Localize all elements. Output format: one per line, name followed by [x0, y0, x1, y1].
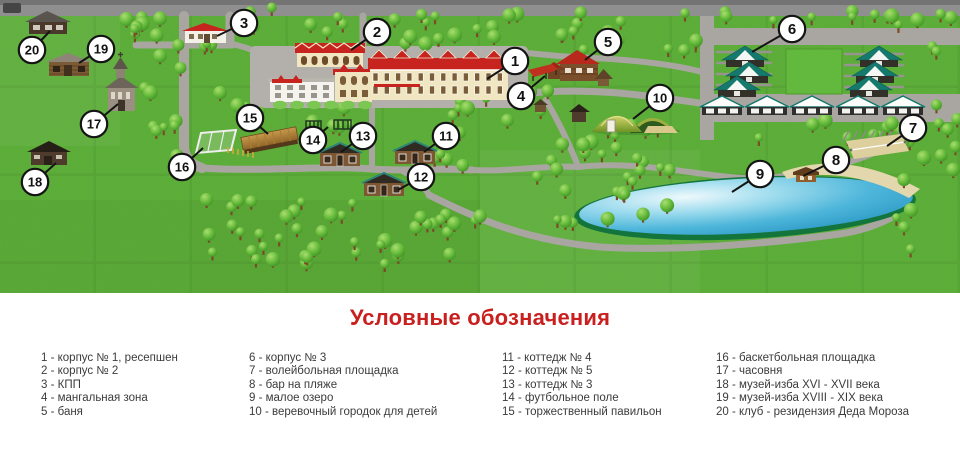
svg-text:18: 18 [28, 175, 42, 190]
svg-text:3: 3 [240, 15, 248, 32]
svg-text:8: 8 [832, 152, 840, 169]
svg-text:15: 15 [243, 111, 257, 126]
svg-text:14: 14 [306, 133, 321, 148]
svg-text:2: 2 [373, 24, 381, 41]
legend-item: 13 - коттедж № 3 [502, 379, 662, 392]
svg-text:12: 12 [414, 170, 428, 185]
resort-map-page: 1234567891011121314151617181920 Условные… [0, 0, 960, 453]
legend-column-1: 1 - корпус № 1, ресепшен2 - корпус № 23 … [41, 352, 178, 419]
svg-text:1: 1 [511, 53, 519, 70]
legend-item: 15 - торжественный павильон [502, 406, 662, 419]
legend-item: 6 - корпус № 3 [249, 352, 437, 365]
legend-item: 9 - малое озеро [249, 392, 437, 405]
legend-item: 10 - веревочный городок для детей [249, 406, 437, 419]
svg-text:16: 16 [175, 160, 189, 175]
svg-text:19: 19 [94, 42, 108, 57]
legend-item: 14 - футбольное поле [502, 392, 662, 405]
lawn-square [786, 49, 842, 94]
legend-column-4: 16 - баскетбольная площадка17 - часовня1… [716, 352, 909, 419]
legend-item: 16 - баскетбольная площадка [716, 352, 909, 365]
legend-item: 3 - КПП [41, 379, 178, 392]
legend-item: 20 - клуб - резидензия Деда Мороза [716, 406, 909, 419]
svg-text:13: 13 [356, 129, 370, 144]
legend-item: 18 - музей-изба XVI - XVII века [716, 379, 909, 392]
legend-item: 8 - бар на пляже [249, 379, 437, 392]
callout-14: 14 [300, 127, 328, 153]
svg-text:7: 7 [909, 120, 917, 137]
legend-item: 1 - корпус № 1, ресепшен [41, 352, 178, 365]
svg-text:11: 11 [439, 129, 453, 144]
legend-item: 19 - музей-изба XVIII - XIX века [716, 392, 909, 405]
legend-column-3: 11 - коттедж № 412 - коттедж № 513 - кот… [502, 352, 662, 419]
svg-text:6: 6 [788, 21, 796, 38]
legend-item: 12 - коттедж № 5 [502, 365, 662, 378]
svg-text:4: 4 [517, 88, 526, 105]
legend-column-2: 6 - корпус № 37 - волейбольная площадка8… [249, 352, 437, 419]
legend-item: 2 - корпус № 2 [41, 365, 178, 378]
svg-text:17: 17 [87, 117, 101, 132]
resort-map: 1234567891011121314151617181920 [0, 0, 960, 293]
legend-item: 5 - баня [41, 406, 178, 419]
vehicle [3, 3, 21, 13]
legend-item: 4 - мангальная зона [41, 392, 178, 405]
legend-title: Условные обозначения [0, 305, 960, 331]
svg-text:20: 20 [25, 43, 39, 58]
legend-item: 7 - волейбольная площадка [249, 365, 437, 378]
legend-item: 17 - часовня [716, 365, 909, 378]
svg-text:9: 9 [756, 166, 764, 183]
svg-text:10: 10 [653, 91, 667, 106]
legend-item: 11 - коттедж № 4 [502, 352, 662, 365]
svg-text:5: 5 [604, 34, 612, 51]
